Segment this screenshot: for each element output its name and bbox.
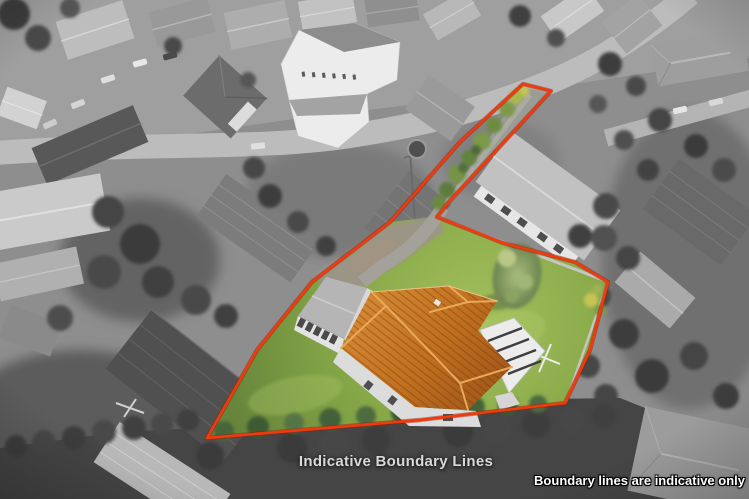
aerial-photo-frame: Indicative Boundary Lines Boundary lines… <box>0 0 749 499</box>
caption-indicative-boundary: Indicative Boundary Lines <box>299 453 493 470</box>
aerial-scene <box>0 0 749 499</box>
vignette <box>0 0 749 499</box>
caption-disclaimer: Boundary lines are indicative only <box>534 473 745 488</box>
